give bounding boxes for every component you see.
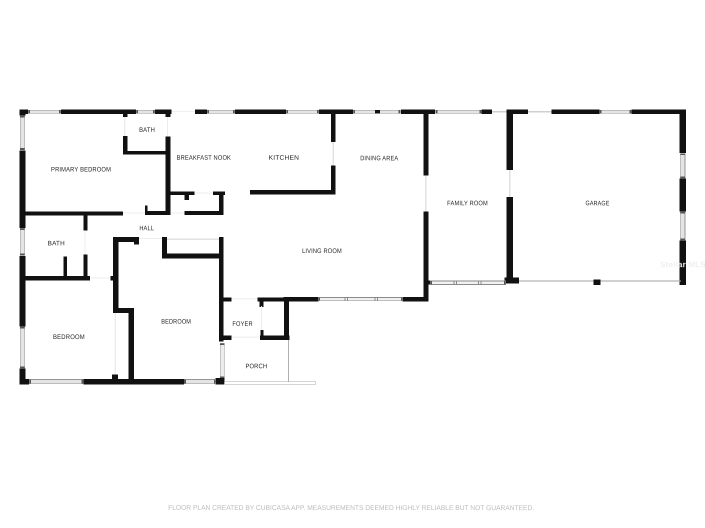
svg-text:KITCHEN: KITCHEN (269, 155, 300, 162)
svg-text:BREAKFAST NOOK: BREAKFAST NOOK (177, 155, 232, 162)
svg-text:BATH: BATH (48, 240, 65, 247)
svg-text:DINING AREA: DINING AREA (360, 155, 398, 162)
svg-text:HALL: HALL (139, 225, 154, 232)
svg-text:BATH: BATH (139, 127, 155, 134)
svg-text:LIVING ROOM: LIVING ROOM (302, 248, 342, 255)
svg-text:FOYER: FOYER (232, 321, 252, 328)
svg-text:PRIMARY BEDROOM: PRIMARY BEDROOM (51, 167, 111, 174)
svg-text:Stellar MLS: Stellar MLS (660, 260, 705, 269)
svg-text:FAMILY ROOM: FAMILY ROOM (447, 200, 488, 207)
svg-text:PORCH: PORCH (245, 363, 267, 370)
svg-text:BEDROOM: BEDROOM (53, 334, 85, 341)
svg-text:FLOOR PLAN CREATED BY CUBICASA: FLOOR PLAN CREATED BY CUBICASA APP. MEAS… (168, 505, 534, 512)
svg-text:BEDROOM: BEDROOM (161, 319, 191, 326)
svg-text:GARAGE: GARAGE (586, 200, 610, 207)
